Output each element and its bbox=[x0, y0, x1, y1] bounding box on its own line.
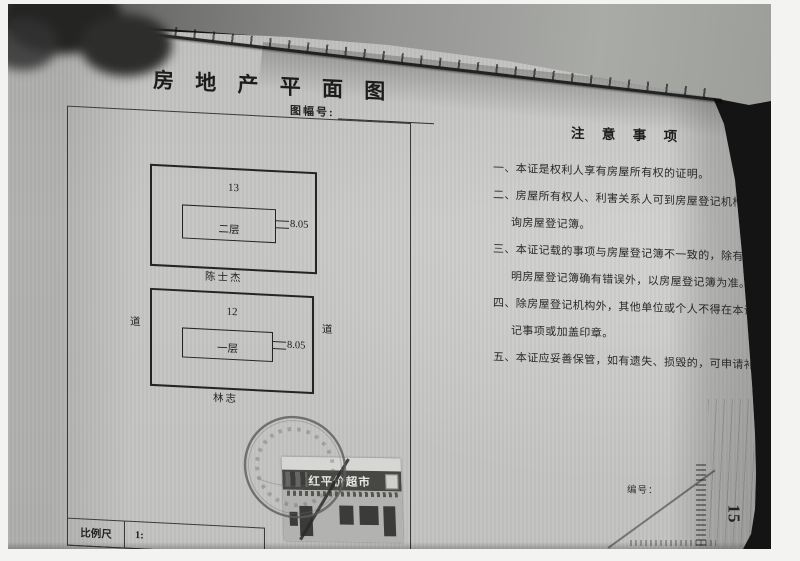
dimension-label: 8.05 bbox=[287, 340, 305, 352]
dimension-ticks bbox=[276, 220, 289, 229]
scale-value: 1: bbox=[125, 522, 264, 549]
owner-name: 陈士杰 bbox=[205, 269, 243, 286]
dimension-label: 8.05 bbox=[290, 219, 308, 231]
floor-outline: 一层 bbox=[182, 327, 273, 362]
floor-label: 一层 bbox=[183, 338, 272, 358]
scale-label: 比例尺 bbox=[68, 519, 125, 548]
dimension-ticks bbox=[273, 341, 286, 350]
serial-number-label: 编号： bbox=[627, 481, 659, 496]
sign-end-plate bbox=[385, 474, 399, 489]
road-label-left: 道 bbox=[130, 314, 141, 330]
micro-text-strip bbox=[630, 540, 716, 546]
owner-name: 林志 bbox=[213, 390, 238, 406]
road-label-right: 道 bbox=[322, 322, 333, 338]
thumb-shadow bbox=[8, 4, 194, 98]
booklet-photo: 房 地 产 平 面 图 图幅号: 13 二层 8.05 陈士杰 12 bbox=[8, 4, 771, 549]
building-block-12: 12 一层 8.05 bbox=[150, 288, 314, 394]
floor-outline: 二层 bbox=[182, 204, 276, 243]
notes-list: 一、本证是权利人享有房屋所有权的证明。二、房屋所有权人、利害关系人可到房屋登记机… bbox=[493, 155, 757, 379]
page-fore-edge bbox=[708, 399, 754, 547]
building-block-13: 13 二层 8.05 bbox=[150, 164, 317, 274]
screenshot-stage: 房 地 产 平 面 图 图幅号: 13 二层 8.05 陈士杰 12 bbox=[0, 0, 800, 561]
micro-text-strip bbox=[696, 464, 706, 546]
floor-plan-section: 房 地 产 平 面 图 图幅号: 13 二层 8.05 陈士杰 12 bbox=[55, 53, 445, 549]
parcel-number: 13 bbox=[152, 178, 315, 198]
notes-heading: 注 意 事 项 bbox=[571, 122, 684, 146]
official-seal-stamp bbox=[237, 407, 353, 529]
parcel-number: 12 bbox=[152, 302, 312, 322]
floor-label: 二层 bbox=[183, 219, 275, 239]
page-number: 15 bbox=[724, 505, 744, 524]
